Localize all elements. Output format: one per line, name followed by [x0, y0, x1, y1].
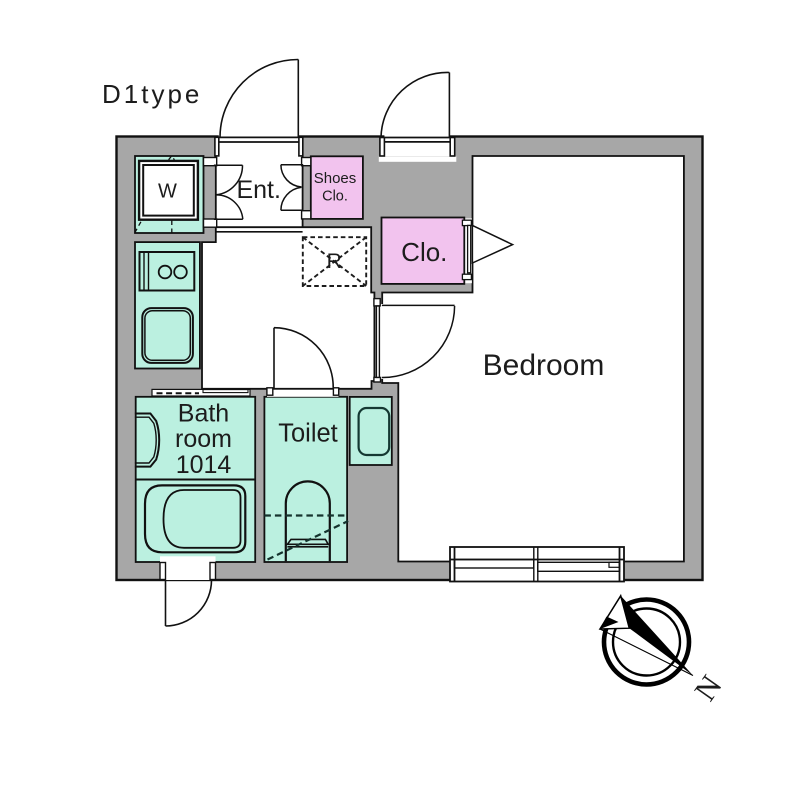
svg-text:room: room [175, 425, 232, 453]
svg-text:D1type: D1type [102, 79, 202, 109]
svg-text:Ent.: Ent. [236, 176, 280, 204]
svg-text:Toilet: Toilet [278, 419, 338, 447]
svg-text:Clo.: Clo. [322, 188, 348, 204]
svg-text:Bedroom: Bedroom [483, 349, 605, 382]
svg-text:Shoes: Shoes [314, 170, 357, 187]
svg-text:R: R [327, 250, 342, 273]
svg-text:Clo.: Clo. [401, 237, 447, 267]
svg-text:1014: 1014 [176, 451, 232, 479]
svg-text:Bath: Bath [178, 400, 229, 428]
svg-text:W: W [158, 181, 177, 203]
